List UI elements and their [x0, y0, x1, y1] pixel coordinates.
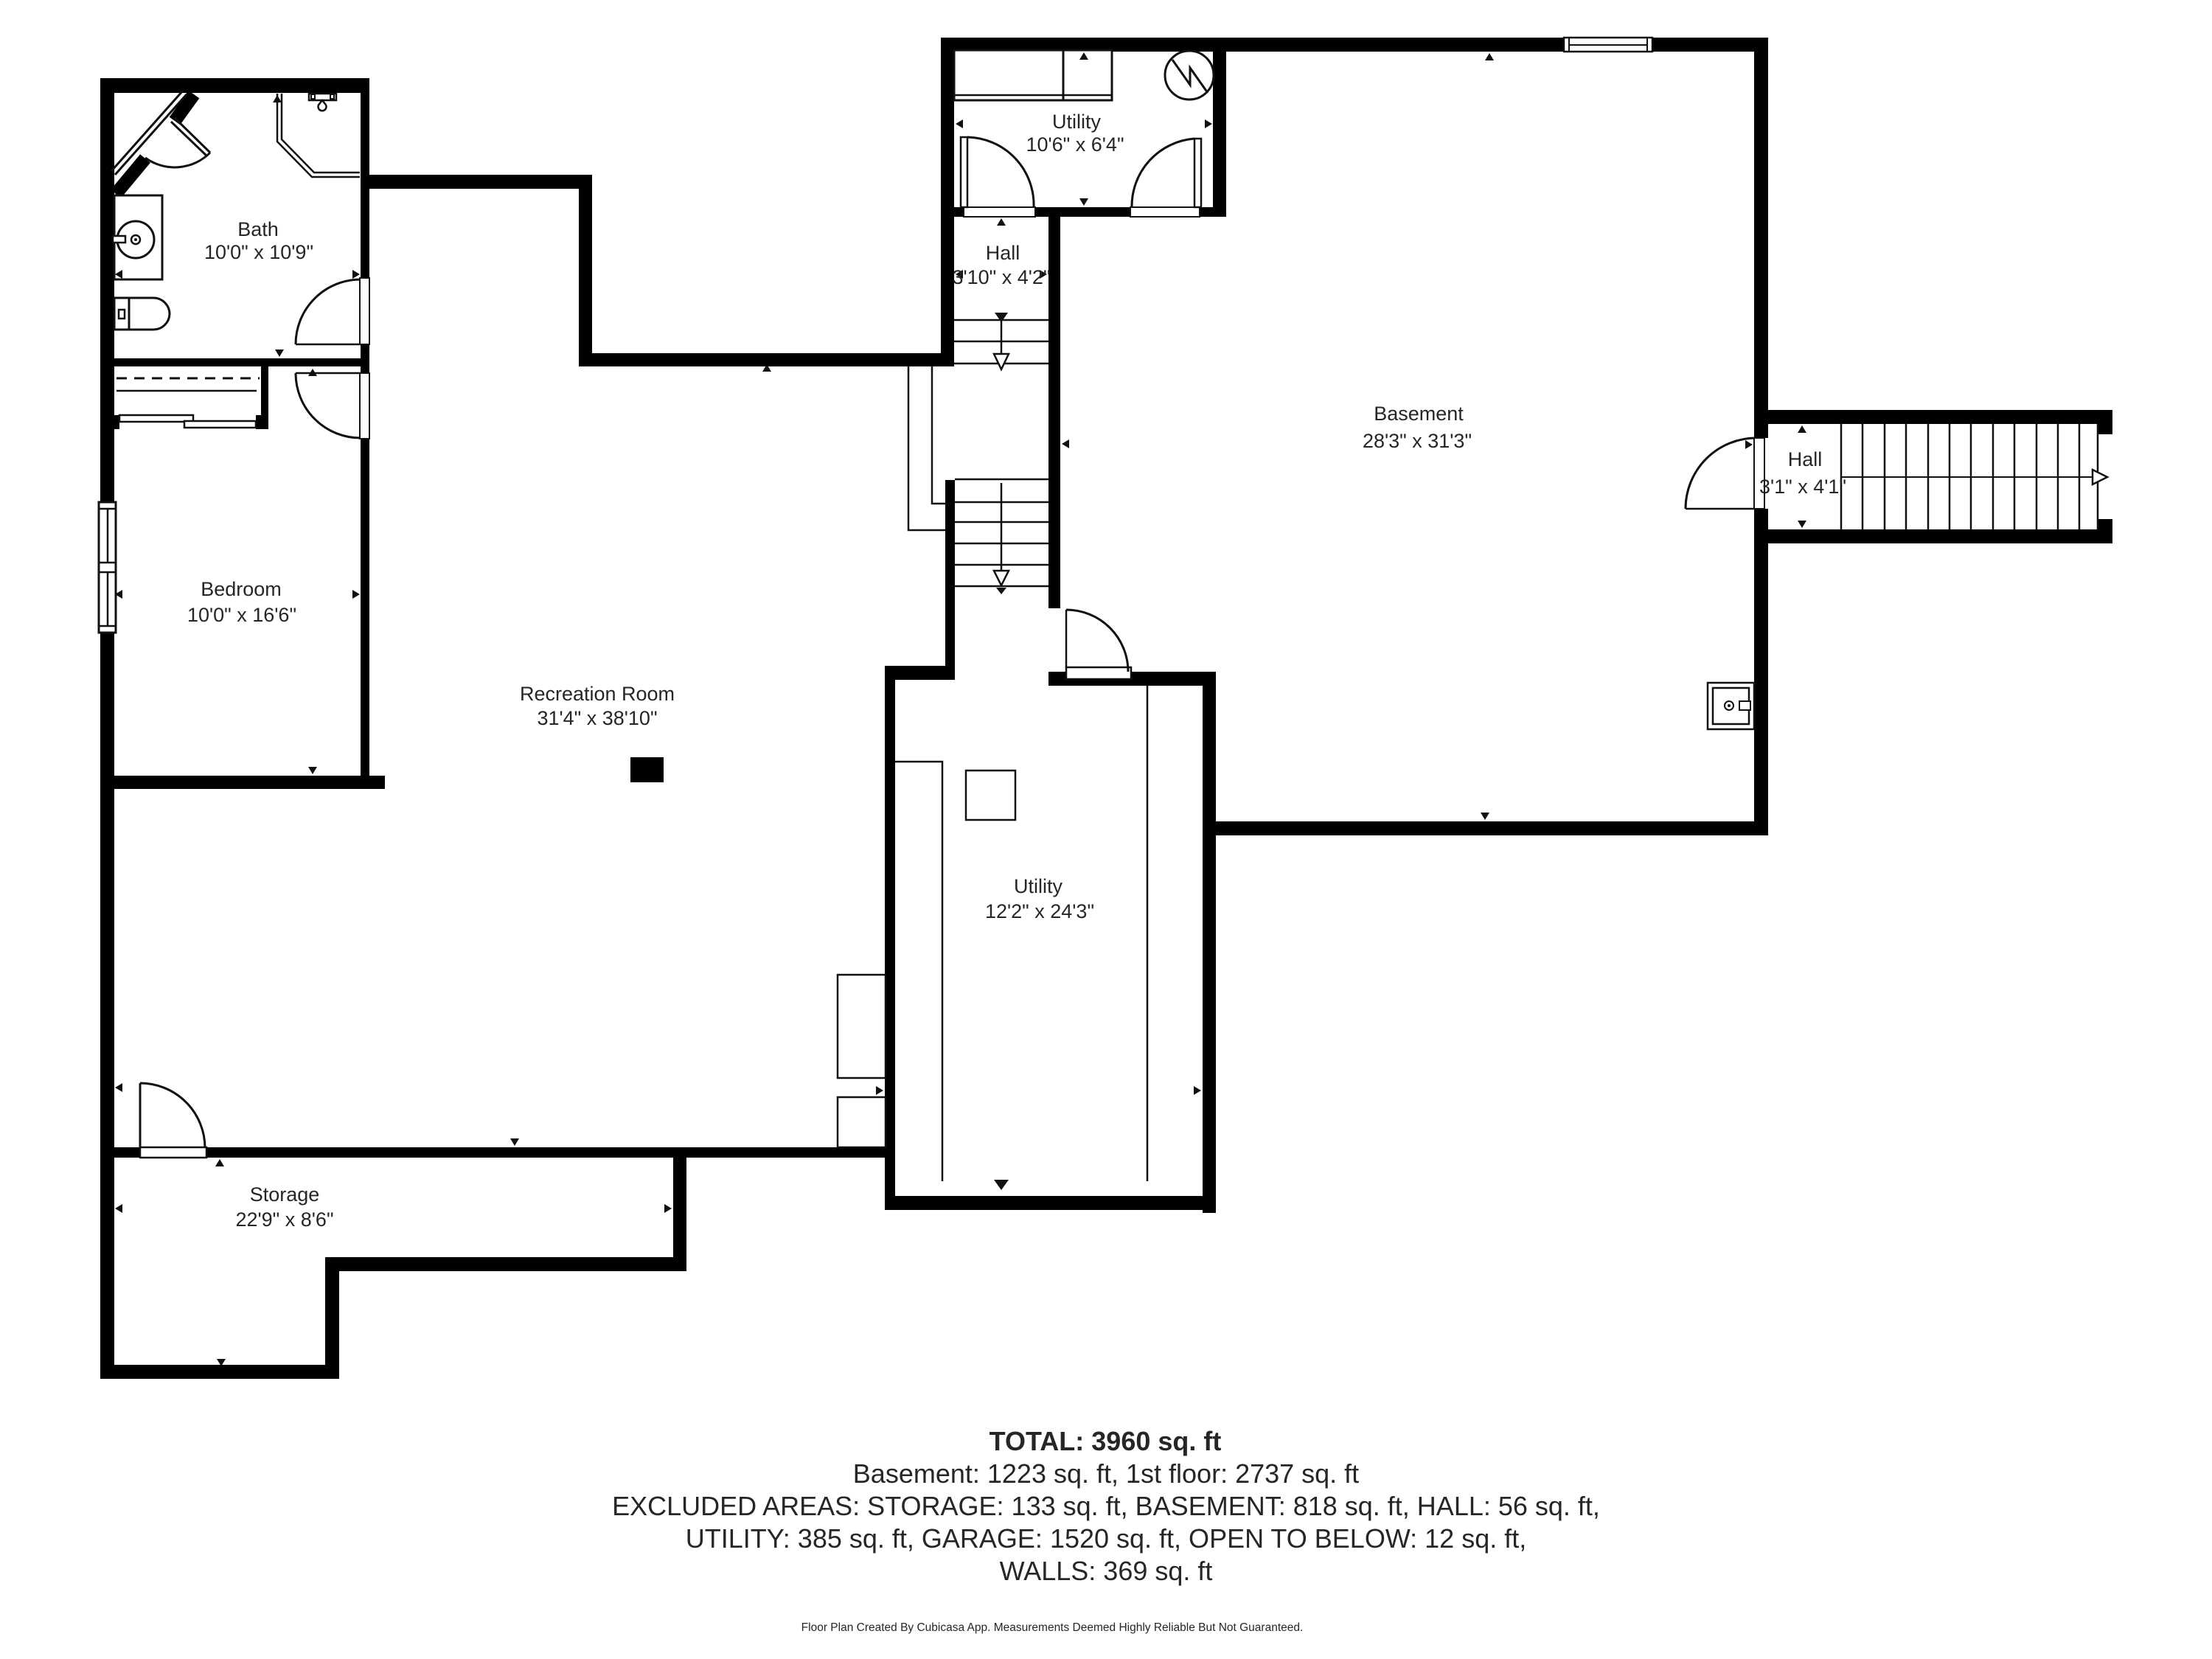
svg-text:10'0" x 10'9": 10'0" x 10'9" — [204, 241, 313, 263]
svg-text:10'6" x 6'4": 10'6" x 6'4" — [1026, 133, 1124, 156]
svg-text:12'2" x 24'3": 12'2" x 24'3" — [985, 900, 1094, 922]
svg-text:Bath: Bath — [237, 218, 279, 240]
svg-text:WALLS: 369 sq. ft: WALLS: 369 sq. ft — [1000, 1556, 1213, 1586]
svg-text:Floor Plan Created By Cubicasa: Floor Plan Created By Cubicasa App. Meas… — [801, 1621, 1304, 1634]
svg-text:22'9" x 8'6": 22'9" x 8'6" — [235, 1208, 333, 1231]
svg-text:Storage: Storage — [250, 1183, 320, 1206]
svg-text:28'3" x 31'3": 28'3" x 31'3" — [1363, 430, 1472, 452]
svg-text:Utility: Utility — [1014, 875, 1062, 897]
svg-text:Utility: Utility — [1052, 111, 1101, 133]
svg-text:Basement: Basement — [1374, 403, 1464, 425]
svg-text:Recreation Room: Recreation Room — [520, 683, 675, 705]
svg-text:Bedroom: Bedroom — [201, 578, 282, 600]
svg-text:Hall: Hall — [986, 242, 1020, 264]
svg-text:TOTAL: 3960 sq. ft: TOTAL: 3960 sq. ft — [990, 1426, 1222, 1456]
svg-text:Hall: Hall — [1788, 448, 1823, 470]
svg-text:EXCLUDED AREAS: STORAGE: 133 s: EXCLUDED AREAS: STORAGE: 133 sq. ft, BAS… — [612, 1491, 1600, 1521]
svg-text:3'10" x 4'2": 3'10" x 4'2" — [952, 266, 1050, 288]
svg-text:Basement: 1223 sq. ft, 1st flo: Basement: 1223 sq. ft, 1st floor: 2737 s… — [853, 1458, 1359, 1489]
svg-text:UTILITY: 385 sq. ft, GARAGE: 1: UTILITY: 385 sq. ft, GARAGE: 1520 sq. ft… — [686, 1523, 1526, 1554]
svg-text:3'1" x 4'1": 3'1" x 4'1" — [1759, 476, 1846, 498]
svg-text:31'4" x 38'10": 31'4" x 38'10" — [537, 707, 657, 729]
svg-text:10'0" x 16'6": 10'0" x 16'6" — [187, 604, 296, 626]
